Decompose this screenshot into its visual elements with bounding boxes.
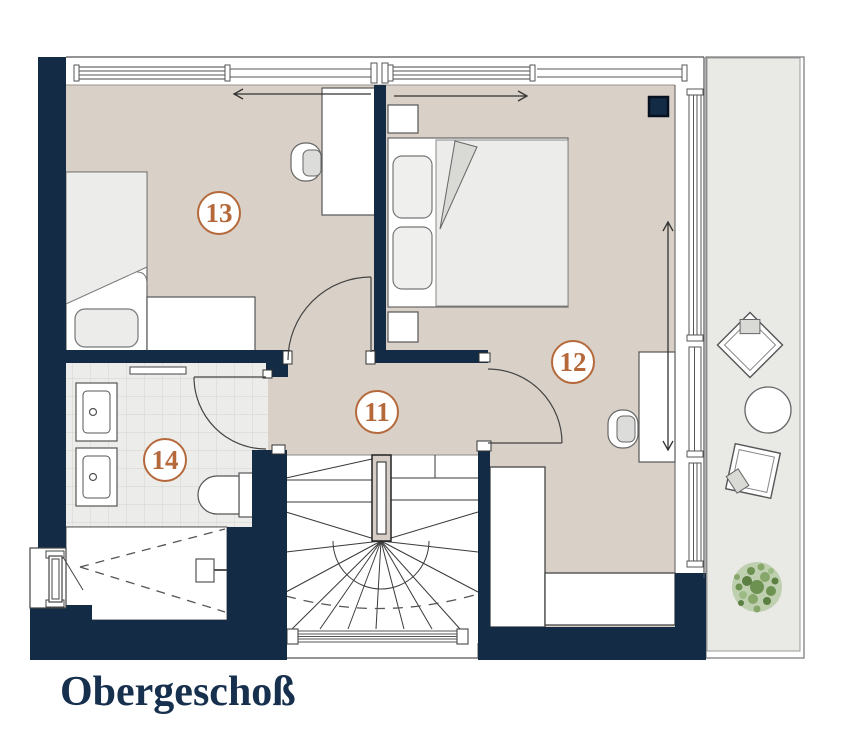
wardrobe-tall — [490, 467, 545, 627]
nightstand — [388, 312, 418, 342]
pillow — [393, 156, 432, 218]
stair-spine — [372, 455, 391, 541]
room-label-12: 12 — [551, 340, 595, 384]
nightstand — [388, 105, 418, 133]
room-number: 11 — [364, 397, 390, 428]
desk — [639, 352, 675, 462]
single-bed — [66, 172, 147, 352]
pillow — [75, 309, 138, 347]
floor-plan-drawing — [0, 0, 854, 756]
sideboard — [147, 297, 255, 352]
room-number: 13 — [206, 198, 233, 229]
balcony-table — [745, 387, 791, 433]
sink-vanity — [76, 383, 117, 441]
staircase — [286, 455, 478, 658]
chimney — [649, 97, 668, 116]
desk-chair — [608, 410, 638, 448]
room-label-11: 11 — [355, 390, 399, 434]
room-label-13: 13 — [197, 191, 241, 235]
right-window-band — [675, 57, 704, 578]
double-bed — [388, 138, 568, 307]
desk-chair — [291, 143, 321, 181]
room-number: 14 — [152, 445, 179, 476]
floor-title: Obergeschoß — [60, 668, 296, 716]
room-label-14: 14 — [143, 438, 187, 482]
floor-plan-page: 11 12 13 14 Obergeschoß — [0, 0, 854, 756]
top-window-band — [66, 57, 704, 83]
pillow — [393, 227, 432, 289]
sink-vanity — [76, 448, 117, 506]
desk — [322, 88, 375, 215]
wardrobe-wide — [545, 573, 675, 625]
toilet — [198, 473, 253, 517]
mirror — [130, 367, 186, 374]
room-number: 12 — [560, 347, 587, 378]
